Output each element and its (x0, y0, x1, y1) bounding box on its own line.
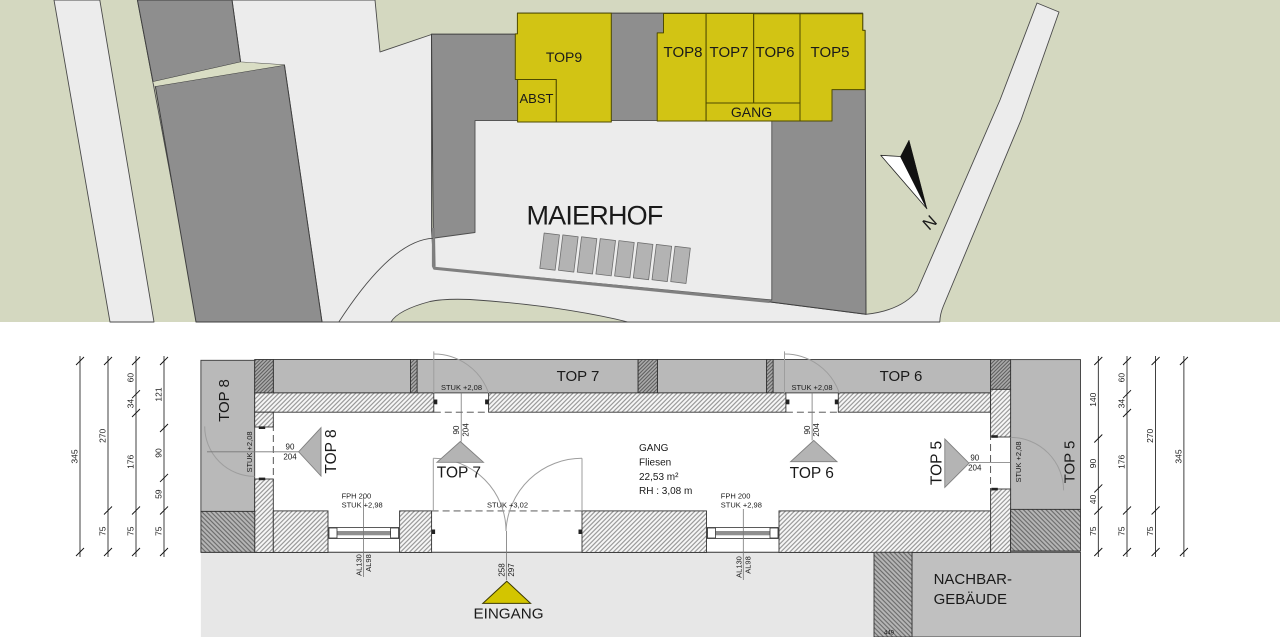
svg-text:ABST: ABST (520, 91, 554, 106)
svg-text:FPH 200: FPH 200 (342, 492, 372, 501)
svg-text:60: 60 (1117, 373, 1127, 383)
svg-text:STUK +2,08: STUK +2,08 (441, 383, 482, 392)
svg-text:90: 90 (1088, 459, 1098, 469)
svg-text:AL98: AL98 (364, 554, 373, 572)
svg-text:22,53 m²: 22,53 m² (639, 472, 679, 483)
svg-text:TOP 5: TOP 5 (1062, 441, 1079, 484)
svg-text:121: 121 (154, 387, 164, 401)
svg-text:75: 75 (154, 526, 164, 536)
svg-text:75: 75 (1117, 526, 1127, 536)
svg-text:75: 75 (98, 526, 108, 536)
svg-text:AL130: AL130 (734, 556, 743, 578)
svg-text:TOP 7: TOP 7 (437, 465, 481, 482)
svg-text:75: 75 (126, 526, 136, 536)
svg-text:Fliesen: Fliesen (639, 458, 671, 469)
svg-text:176: 176 (1117, 454, 1127, 468)
svg-text:270: 270 (98, 428, 108, 442)
svg-text:34: 34 (126, 399, 136, 409)
svg-text:TOP 8: TOP 8 (323, 429, 340, 473)
svg-text:204: 204 (968, 464, 982, 473)
svg-text:GEBÄUDE: GEBÄUDE (934, 591, 1007, 608)
svg-text:FPH 200: FPH 200 (721, 492, 751, 501)
svg-text:34: 34 (1117, 399, 1127, 409)
svg-text:59: 59 (154, 489, 164, 499)
svg-text:90: 90 (154, 448, 164, 458)
svg-text:90: 90 (286, 443, 295, 452)
svg-text:TOP 6: TOP 6 (790, 465, 834, 482)
svg-text:GANG: GANG (639, 443, 669, 454)
svg-text:258: 258 (498, 563, 507, 577)
svg-text:90: 90 (452, 425, 461, 434)
svg-text:TOP7: TOP7 (710, 44, 749, 61)
svg-text:TOP 5: TOP 5 (929, 441, 946, 485)
svg-text:TOP 6: TOP 6 (880, 368, 923, 385)
svg-text:204: 204 (283, 453, 297, 462)
svg-text:40: 40 (1088, 495, 1098, 505)
svg-text:EINGANG: EINGANG (473, 606, 543, 623)
svg-text:176: 176 (126, 454, 136, 468)
svg-text:STUK +2,98: STUK +2,98 (342, 501, 383, 510)
svg-text:75: 75 (1145, 526, 1155, 536)
svg-text:STUK +3,02: STUK +3,02 (487, 501, 528, 510)
svg-text:GANG: GANG (731, 104, 772, 120)
svg-text:140: 140 (1088, 392, 1098, 406)
svg-text:TOP 8: TOP 8 (216, 379, 233, 422)
svg-text:449: 449 (884, 631, 895, 637)
svg-text:204: 204 (812, 423, 821, 437)
svg-text:AL98: AL98 (744, 556, 753, 574)
svg-text:90: 90 (970, 454, 979, 463)
svg-text:TOP5: TOP5 (811, 44, 850, 61)
svg-text:STUK +2,98: STUK +2,98 (721, 501, 762, 510)
svg-text:TOP8: TOP8 (664, 44, 703, 61)
svg-text:RH : 3,08 m: RH : 3,08 m (639, 486, 692, 497)
svg-text:345: 345 (70, 449, 80, 463)
svg-text:TOP9: TOP9 (546, 49, 583, 65)
svg-text:60: 60 (126, 373, 136, 383)
svg-text:345: 345 (1173, 449, 1183, 463)
svg-text:STUK +2,08: STUK +2,08 (1014, 441, 1023, 482)
svg-text:AL130: AL130 (355, 554, 364, 576)
svg-text:TOP6: TOP6 (756, 44, 795, 61)
svg-text:STUK +2,08: STUK +2,08 (791, 383, 832, 392)
svg-text:NACHBAR-: NACHBAR- (934, 571, 1012, 588)
svg-text:204: 204 (461, 423, 470, 437)
svg-text:297: 297 (507, 563, 516, 577)
svg-text:90: 90 (803, 425, 812, 434)
svg-text:270: 270 (1145, 428, 1155, 442)
svg-text:MAIERHOF: MAIERHOF (526, 201, 662, 231)
svg-text:75: 75 (1088, 526, 1098, 536)
svg-text:STUK +2,08: STUK +2,08 (245, 431, 254, 472)
svg-text:TOP 7: TOP 7 (557, 368, 600, 385)
